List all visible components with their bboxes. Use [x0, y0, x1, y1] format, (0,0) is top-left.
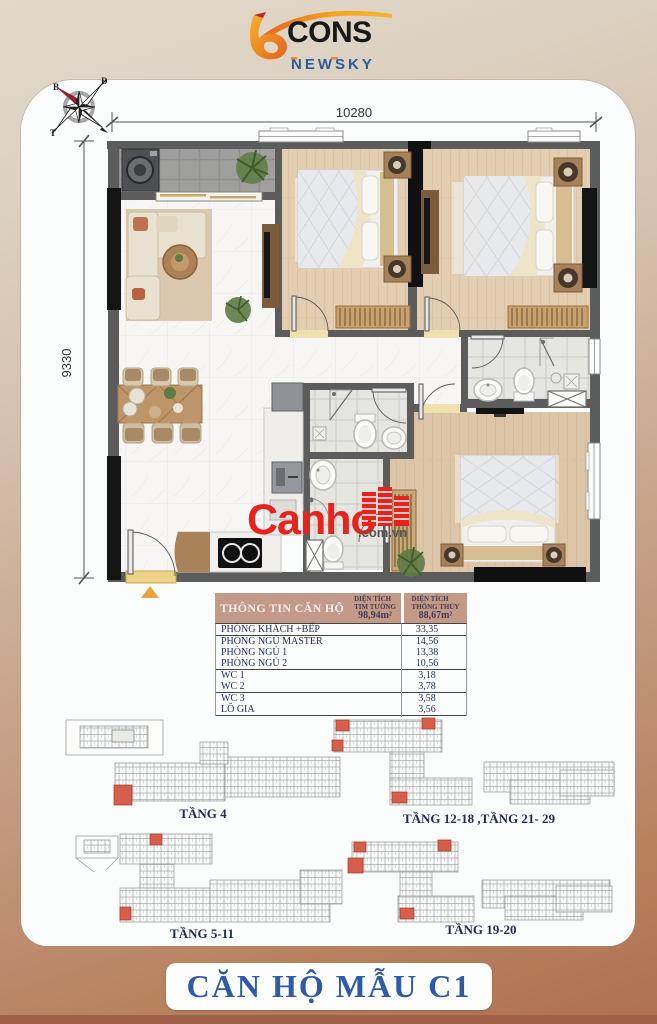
svg-text:TẦNG 4: TẦNG 4	[179, 806, 227, 821]
svg-text:10280: 10280	[336, 105, 372, 120]
svg-text:T: T	[50, 128, 56, 138]
svg-text:TẦNG 5-11: TẦNG 5-11	[170, 926, 234, 941]
svg-text:TẦNG 12-18 ,TẦNG 21- 29: TẦNG 12-18 ,TẦNG 21- 29	[403, 811, 556, 826]
svg-text:B: B	[53, 82, 59, 92]
svg-text:TẦNG 19-20: TẦNG 19-20	[445, 922, 516, 937]
svg-text:CONS: CONS	[287, 16, 372, 49]
svg-text:.com.vn: .com.vn	[358, 525, 407, 540]
svg-text:Canho: Canho	[247, 496, 376, 544]
svg-text:9330: 9330	[59, 349, 74, 378]
svg-text:Đ: Đ	[101, 76, 108, 86]
